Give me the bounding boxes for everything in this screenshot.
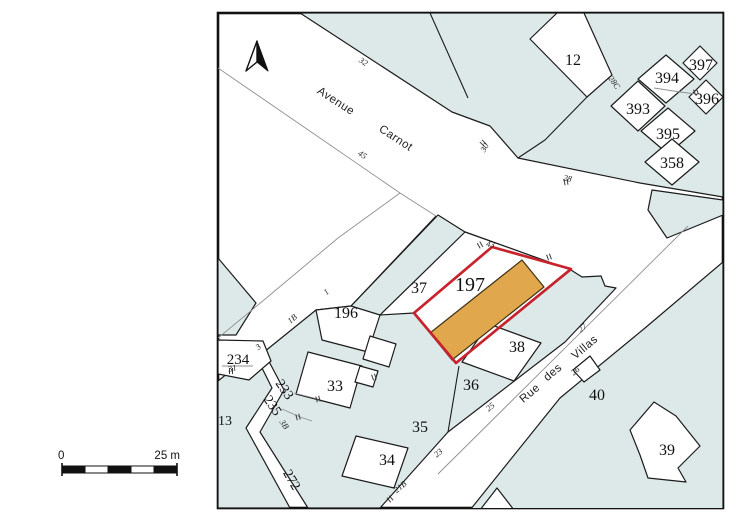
parcel-label-33: 33 — [327, 378, 343, 395]
scale-bar-end-label: 25 m — [154, 450, 180, 462]
parcel-label-393: 393 — [626, 101, 650, 118]
parcel-label-196: 196 — [334, 305, 358, 322]
parcel-label-395: 395 — [656, 126, 680, 143]
parcel-label-36: 36 — [463, 377, 479, 394]
parcel-label-37: 37 — [411, 280, 427, 297]
cadastral-map: 1239439739339639535819637197383635343340… — [0, 0, 738, 522]
cadastral-map-page: 1239439739339639535819637197383635343340… — [0, 0, 738, 522]
parcel-label-34: 34 — [379, 452, 395, 469]
parcel-label-40: 40 — [589, 387, 605, 404]
parcel-label-397: 397 — [689, 57, 713, 74]
parcel-label-35: 35 — [412, 419, 428, 436]
parcel-label-38: 38 — [509, 339, 525, 356]
parcel-label-358: 358 — [660, 155, 684, 172]
parcel-label-12: 12 — [565, 52, 581, 69]
scale-bar-start-label: 0 — [58, 450, 64, 462]
scale-bar: 0 25 m — [58, 450, 180, 476]
parcel-label-394: 394 — [655, 70, 679, 87]
parcel-label-39: 39 — [659, 442, 675, 459]
parcel-label-197[interactable]: 197 — [455, 274, 485, 296]
parcel-label-396: 396 — [695, 91, 719, 108]
house-number-43: 43 — [485, 238, 495, 249]
parcel-label-13: 13 — [218, 414, 232, 429]
